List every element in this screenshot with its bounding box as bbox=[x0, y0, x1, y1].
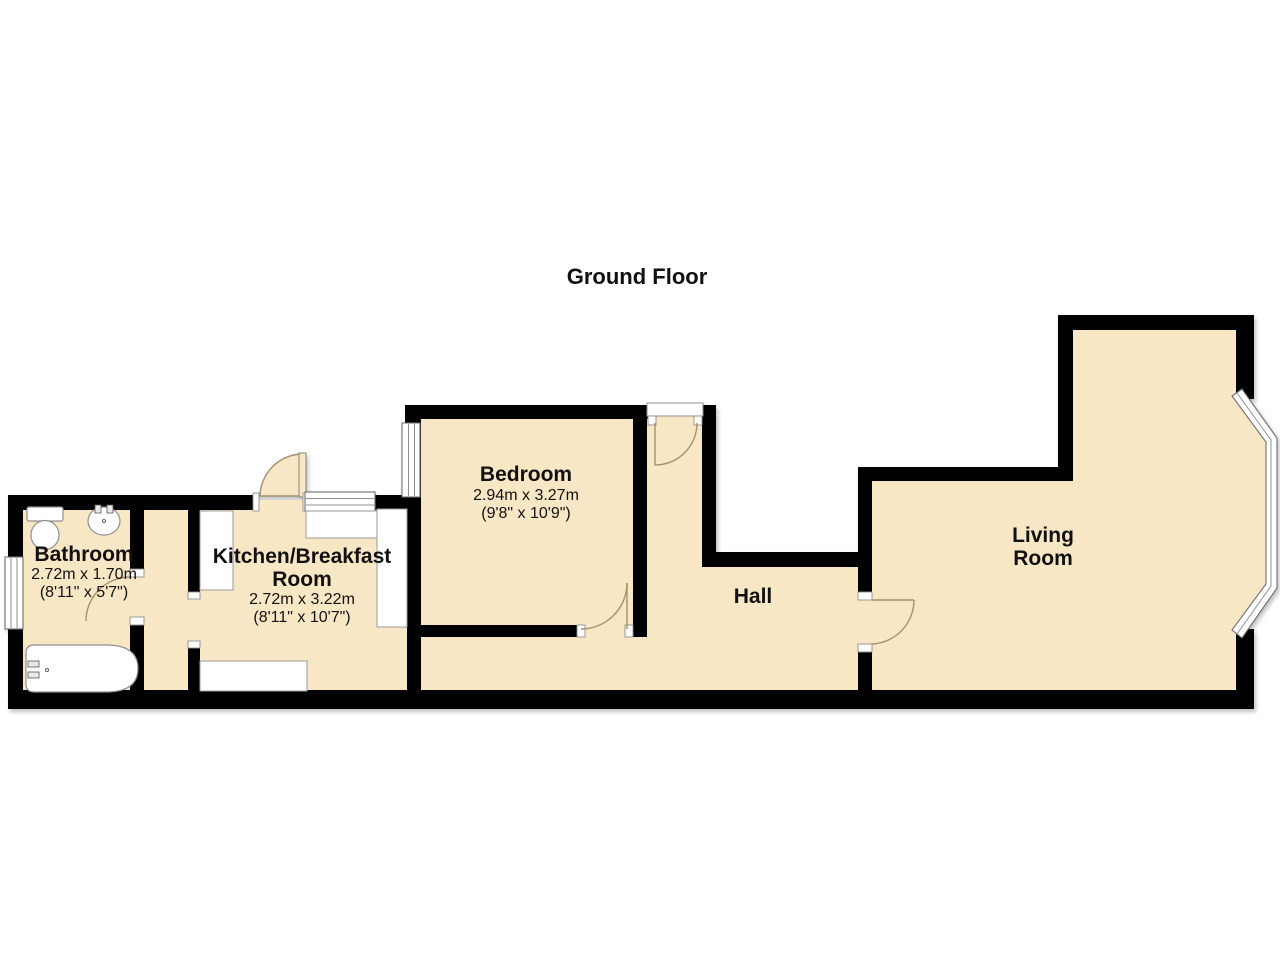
door-jamb bbox=[625, 625, 633, 637]
wall-segment bbox=[407, 625, 577, 637]
room-name: Room bbox=[1013, 547, 1073, 570]
bathtub bbox=[26, 645, 138, 692]
kitchen-window bbox=[305, 492, 375, 511]
room-label-hall: Hall bbox=[734, 585, 773, 608]
room-name: Bedroom bbox=[480, 463, 572, 486]
door-jamb bbox=[188, 592, 200, 599]
floorplan: Bathroom 2.72m x 1.70m (8'11" x 5'7") Ki… bbox=[5, 315, 1277, 709]
room-label-living-room: Living Room bbox=[1012, 524, 1074, 570]
sink-drain bbox=[102, 519, 105, 522]
floorplan-page: Ground Floor bbox=[0, 0, 1280, 960]
toilet-cistern bbox=[27, 507, 63, 521]
window-frame bbox=[305, 492, 375, 511]
floorplan-canvas: Ground Floor bbox=[0, 0, 1280, 960]
wall-segment bbox=[1058, 315, 1254, 330]
wall-segment bbox=[1058, 315, 1073, 481]
wall-segment bbox=[702, 552, 872, 567]
door-jamb bbox=[130, 617, 144, 625]
room-dim-imperial: (9'8" x 10'9") bbox=[481, 505, 571, 522]
door-jamb bbox=[858, 644, 872, 652]
bathtub-outline bbox=[26, 645, 138, 692]
wall-segment bbox=[188, 648, 200, 691]
room-dim-metric: 2.72m x 3.22m bbox=[249, 591, 355, 608]
page-title: Ground Floor bbox=[567, 264, 708, 289]
wall-segment bbox=[407, 510, 421, 691]
kitchen-counter bbox=[200, 661, 307, 691]
room-name: Living bbox=[1012, 524, 1074, 547]
door-leaf bbox=[299, 453, 306, 497]
room-name: Hall bbox=[734, 585, 773, 608]
door-jamb bbox=[188, 641, 200, 648]
wall-segment bbox=[633, 419, 647, 637]
window-frame bbox=[402, 423, 420, 497]
wall-segment bbox=[702, 405, 716, 567]
wall-segment bbox=[1236, 315, 1254, 399]
bedroom-window bbox=[402, 423, 420, 497]
door-jamb bbox=[577, 625, 585, 637]
window-frame bbox=[5, 557, 23, 629]
room-dim-metric: 2.72m x 1.70m bbox=[31, 566, 137, 583]
door-jamb bbox=[253, 493, 259, 511]
room-dim-metric: 2.94m x 3.27m bbox=[473, 487, 579, 504]
wall-segment bbox=[8, 690, 1254, 709]
room-dim-imperial: (8'11" x 5'7") bbox=[40, 584, 128, 601]
wall-segment bbox=[1236, 629, 1254, 705]
door-jamb bbox=[858, 592, 872, 600]
kitchen-counter bbox=[377, 509, 407, 627]
bathtub-tap bbox=[28, 672, 39, 678]
room-name: Bathroom bbox=[34, 543, 133, 566]
room-label-bedroom: Bedroom 2.94m x 3.27m (9'8" x 10'9") bbox=[473, 463, 579, 522]
door-jamb bbox=[694, 416, 702, 425]
wall-segment bbox=[858, 467, 872, 592]
wall-segment bbox=[405, 405, 648, 419]
wall-segment bbox=[188, 510, 200, 592]
wall-segment bbox=[858, 652, 872, 691]
sink-tap bbox=[95, 505, 101, 513]
sink-tap bbox=[107, 505, 113, 513]
room-dim-imperial: (8'11" x 10'7") bbox=[253, 609, 350, 626]
room-name: Kitchen/Breakfast bbox=[213, 545, 392, 568]
door-swing-arc bbox=[260, 454, 303, 496]
bathroom-window bbox=[5, 557, 23, 629]
bathtub-drain bbox=[45, 668, 48, 671]
kitchen-counter bbox=[306, 511, 377, 538]
room-name: Room bbox=[272, 568, 332, 591]
door-threshold bbox=[647, 403, 703, 416]
bathtub-tap bbox=[28, 661, 39, 667]
room-label-bathroom: Bathroom 2.72m x 1.70m (8'11" x 5'7") bbox=[31, 543, 137, 601]
wall-segment bbox=[858, 467, 1072, 481]
